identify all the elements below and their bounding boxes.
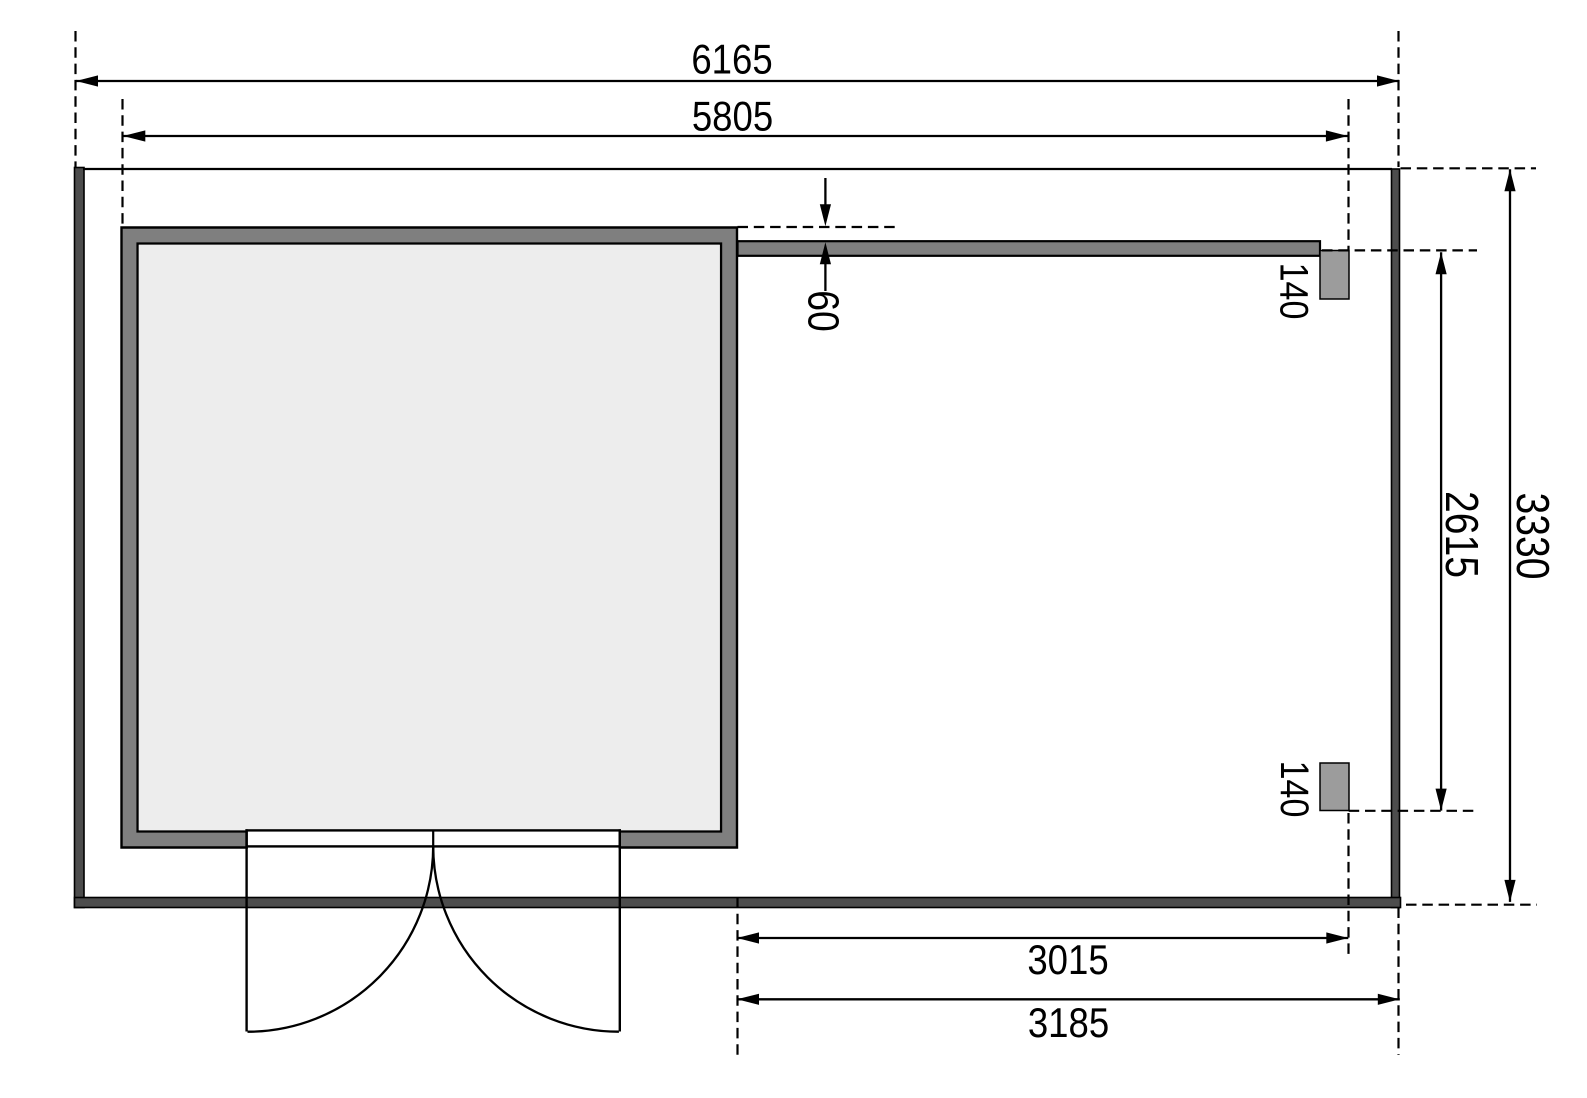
svg-text:2615: 2615 — [1435, 491, 1487, 578]
svg-text:3185: 3185 — [1028, 1000, 1109, 1047]
svg-text:140: 140 — [1272, 761, 1317, 818]
svg-text:140: 140 — [1272, 263, 1317, 320]
svg-text:6165: 6165 — [691, 36, 772, 83]
svg-text:3015: 3015 — [1027, 937, 1108, 984]
svg-text:3330: 3330 — [1506, 493, 1558, 580]
svg-text:60: 60 — [799, 290, 849, 332]
svg-text:5805: 5805 — [692, 93, 773, 140]
